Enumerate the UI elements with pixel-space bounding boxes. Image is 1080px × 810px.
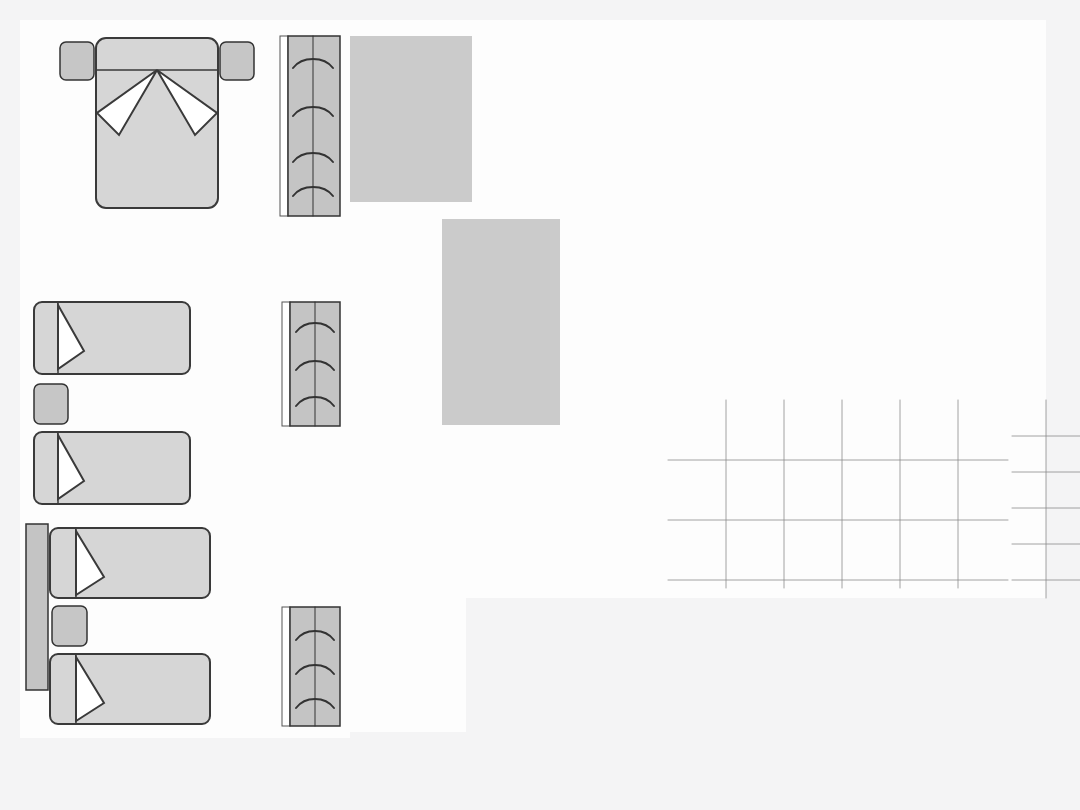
shower-room-floor [442,219,560,425]
interior-hall [344,392,466,732]
double-bed [96,38,218,208]
bed-frame [50,528,210,598]
wardrobe-front [282,302,290,426]
floor-plan-page [0,0,1080,810]
bathroom-floor [350,36,472,202]
wardrobe-front [282,607,290,726]
single-bed [50,528,210,598]
nightstand [52,606,87,646]
bed-frame [50,654,210,724]
single-bed [50,654,210,724]
nightstand [60,42,94,80]
single-bed [34,432,190,504]
wardrobe-body [288,36,340,216]
wardrobe-master [280,36,340,216]
side-shelf [26,524,48,690]
nightstand [220,42,254,80]
single-bed [34,302,190,374]
wardrobe-bedroom2 [282,302,340,426]
nightstand [34,384,68,424]
floor-plan-canvas [0,0,1080,810]
wardrobe-bedroom3 [282,607,340,726]
wardrobe-front [280,36,288,216]
